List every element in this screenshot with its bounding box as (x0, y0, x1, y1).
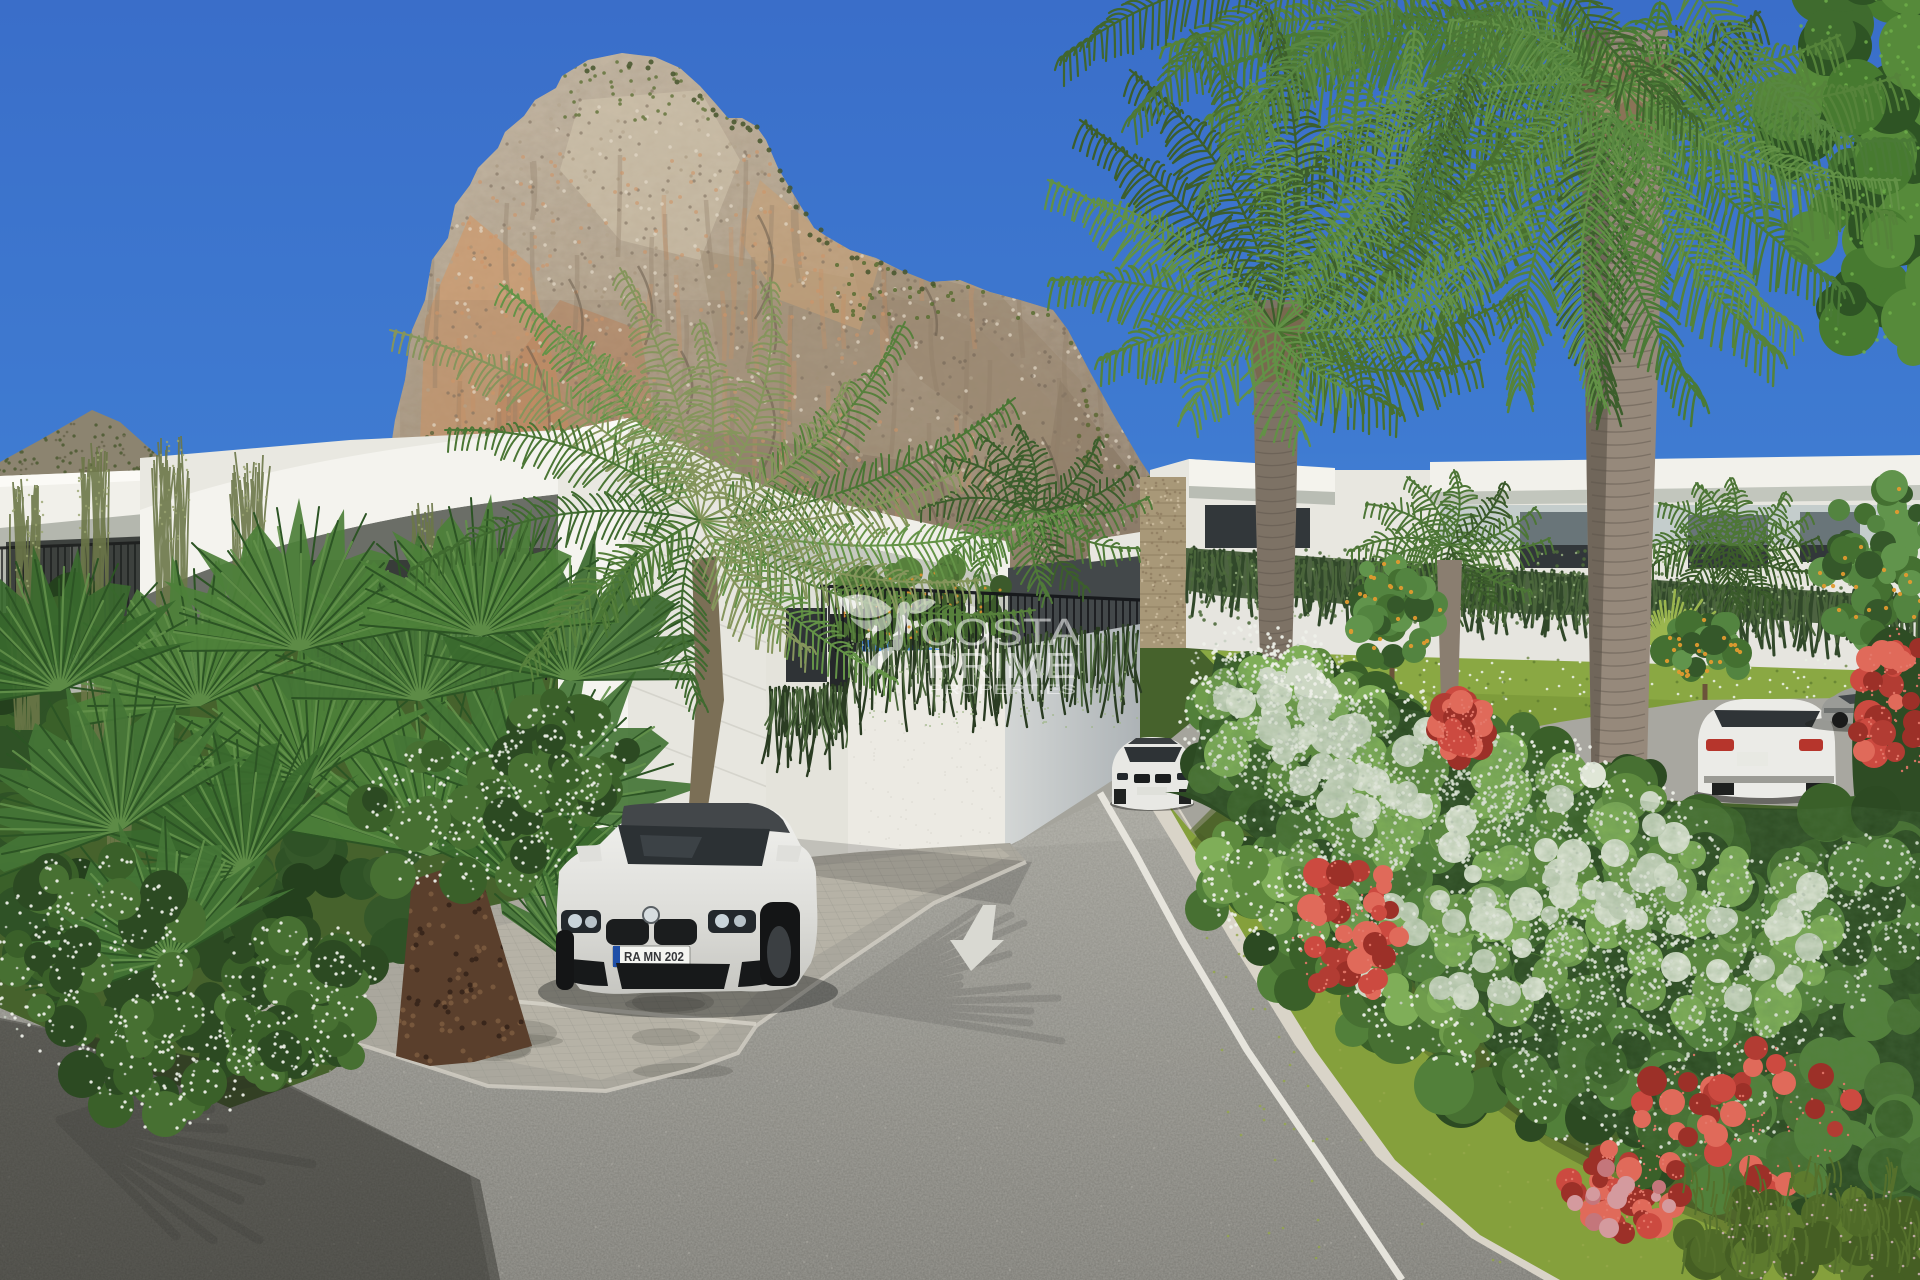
svg-text:PRIME: PRIME (926, 645, 1076, 686)
svg-text:RA MN 202: RA MN 202 (624, 950, 684, 964)
svg-text:PROPERTIES: PROPERTIES (928, 681, 1076, 697)
